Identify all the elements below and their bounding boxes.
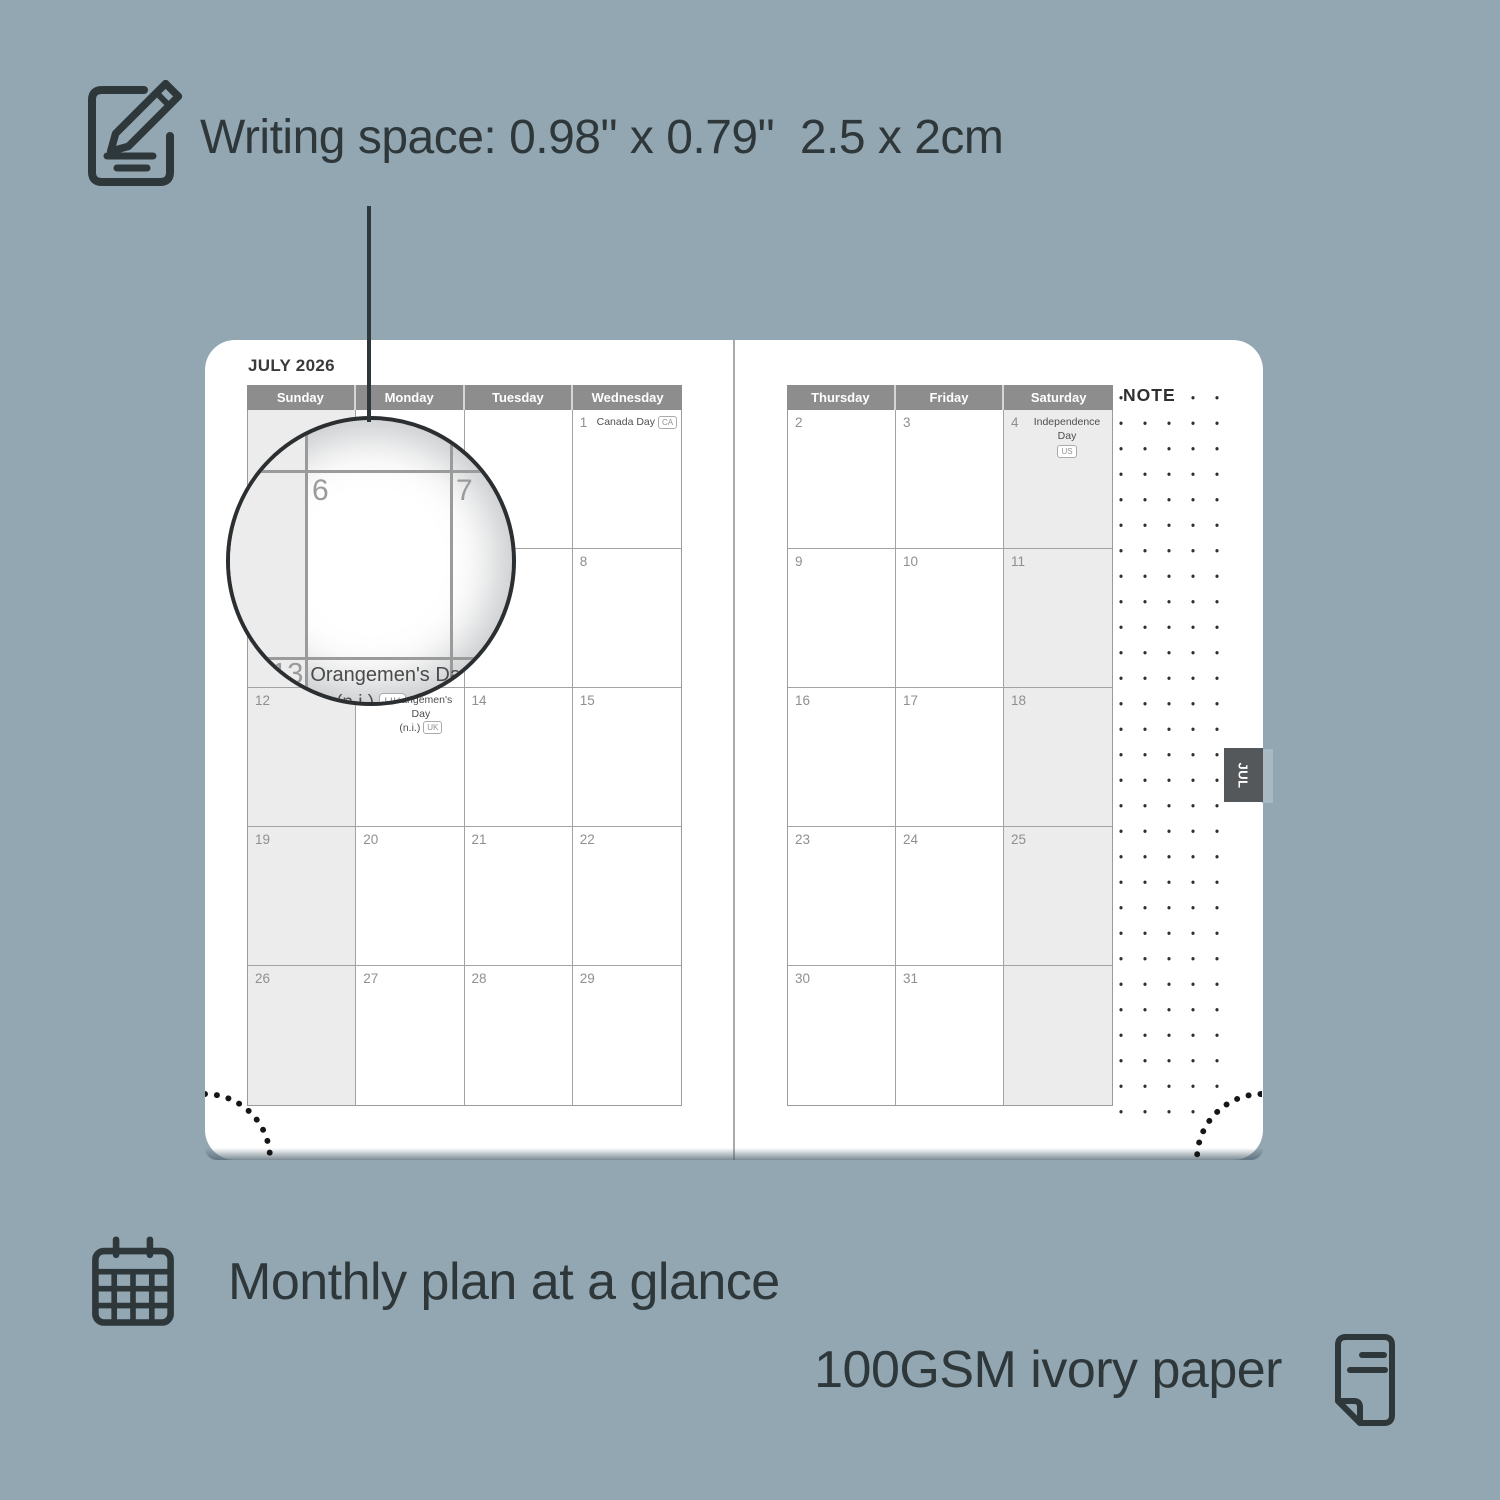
day-number: 2 [795, 415, 803, 430]
day-number: 11 [1011, 554, 1025, 569]
day-number: 27 [363, 971, 378, 986]
magnified-day-6: 6 [312, 474, 329, 508]
calendar-cell: 22 [573, 827, 681, 966]
country-badge-us: US [1057, 445, 1076, 458]
weekday-header-sunday: Sunday [247, 385, 356, 410]
monthly-plan-caption: Monthly plan at a glance [228, 1252, 780, 1312]
calendar-right-page: ThursdayFridaySaturday 234Independence D… [787, 385, 1113, 1106]
day-number: 1 [580, 415, 588, 430]
day-number: 15 [580, 693, 595, 708]
page-seam [733, 340, 735, 1160]
calendar-cell: 8 [573, 549, 681, 688]
magnified-holiday-name: Orangemen's Day [310, 664, 471, 686]
note-label: NOTE [1123, 385, 1183, 406]
calendar-cell: 31 [896, 966, 1004, 1105]
day-number: 16 [795, 693, 810, 708]
calendar-cell: 30 [788, 966, 896, 1105]
calendar-cell: 4Independence DayUS [1004, 410, 1112, 549]
magnified-day-7: 7 [456, 474, 473, 508]
day-number: 20 [363, 832, 378, 847]
day-number: 4 [1011, 415, 1019, 430]
day-number: 30 [795, 971, 810, 986]
day-number: 22 [580, 832, 595, 847]
calendar-cell: 29 [573, 966, 681, 1105]
calendar-cell: 27 [356, 966, 464, 1105]
magnified-day-13: 13 [271, 658, 303, 690]
calendar-cell: 10 [896, 549, 1004, 688]
calendar-cell: 25 [1004, 827, 1112, 966]
day-number: 23 [795, 832, 810, 847]
calendar-cell: 16 [788, 688, 896, 827]
page-bottom-edge [205, 1148, 1263, 1160]
day-number: 8 [580, 554, 588, 569]
calendar-cell: 15 [573, 688, 681, 827]
country-badge-uk: UK [423, 721, 442, 734]
day-number: 18 [1011, 693, 1026, 708]
calendar-cell [1004, 966, 1112, 1105]
calendar-cell: 20 [356, 827, 464, 966]
weekday-header-row: ThursdayFridaySaturday [787, 385, 1113, 410]
day-number: 17 [903, 693, 918, 708]
magnified-grid-line [230, 470, 512, 473]
calendar-cell: 3 [896, 410, 1004, 549]
day-number: 26 [255, 971, 270, 986]
planner-page-spread: JULY 2026 SundayMondayTuesdayWednesday 1… [205, 340, 1263, 1160]
calendar-cell: 9 [788, 549, 896, 688]
paper-sheet-icon [1322, 1332, 1402, 1432]
paper-quality-caption: 100GSM ivory paper [814, 1340, 1282, 1400]
calendar-cell: 28 [465, 966, 573, 1105]
magnifier-circle: 6 7 13Orangemen's Day (n.i.) UK [226, 416, 516, 706]
notepad-pencil-icon [88, 80, 184, 186]
country-badge-ca: CA [658, 416, 677, 429]
calendar-cell: 24 [896, 827, 1004, 966]
holiday-label: Independence DayUS [1024, 416, 1110, 460]
calendar-cell: 11 [1004, 549, 1112, 688]
weekday-header-tuesday: Tuesday [465, 385, 574, 410]
day-number: 29 [580, 971, 595, 986]
weekday-header-monday: Monday [356, 385, 465, 410]
note-dot-grid [1117, 390, 1229, 1135]
month-tab: JUL [1224, 748, 1263, 802]
day-number: 31 [903, 971, 918, 986]
calendar-cell: 19 [248, 827, 356, 966]
calendar-cell: 2 [788, 410, 896, 549]
callout-connector-line [367, 206, 371, 422]
calendar-cell: 23 [788, 827, 896, 966]
calendar-cell: 18 [1004, 688, 1112, 827]
holiday-label: Canada DayCA [595, 416, 679, 430]
calendar-grid-icon [86, 1236, 180, 1330]
calendar-cell: 14 [465, 688, 573, 827]
month-tab-edge [1262, 749, 1273, 803]
weekday-header-row: SundayMondayTuesdayWednesday [247, 385, 682, 410]
day-number: 10 [903, 554, 918, 569]
calendar-cell: 17 [896, 688, 1004, 827]
day-number: 19 [255, 832, 270, 847]
day-number: 3 [903, 415, 911, 430]
day-number: 25 [1011, 832, 1026, 847]
calendar-grid-right: 234Independence DayUS9101116171823242530… [787, 410, 1113, 1106]
weekday-header-wednesday: Wednesday [573, 385, 682, 410]
calendar-cell: 1Canada DayCA [573, 410, 681, 549]
weekday-header-thursday: Thursday [787, 385, 896, 410]
month-title: JULY 2026 [248, 356, 335, 376]
weekday-header-saturday: Saturday [1004, 385, 1113, 410]
month-tab-label: JUL [1236, 762, 1251, 788]
day-number: 21 [472, 832, 487, 847]
day-number: 24 [903, 832, 918, 847]
calendar-cell: 26 [248, 966, 356, 1105]
weekday-header-friday: Friday [896, 385, 1005, 410]
day-number: 9 [795, 554, 803, 569]
calendar-cell: 21 [465, 827, 573, 966]
day-number: 28 [472, 971, 487, 986]
calendar-cell: 12 [248, 688, 356, 827]
writing-space-caption: Writing space: 0.98" x 0.79" 2.5 x 2cm [200, 110, 1003, 165]
calendar-cell: 13Orangemen's Day(n.i.) UK [356, 688, 464, 827]
magnified-holiday-line1: 13Orangemen's Day [230, 658, 512, 691]
